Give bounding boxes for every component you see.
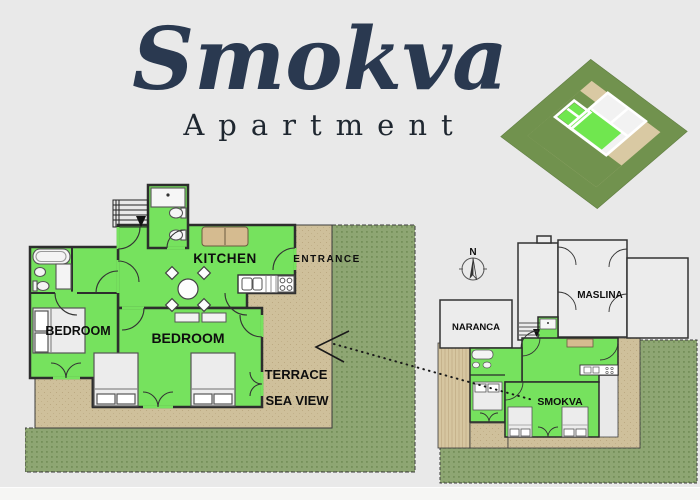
toilet-tank	[33, 281, 37, 291]
main-floor-plan: KITCHEN BEDROOM BEDROOM ENTRANCE TERRACE…	[25, 175, 425, 485]
site-counter	[580, 365, 618, 375]
compass: N	[459, 247, 487, 280]
site-bed-2	[562, 407, 588, 437]
site-terrace-small	[470, 423, 508, 448]
site-bath-sink	[473, 362, 480, 368]
title-script: Smokva	[110, 6, 530, 114]
site-terrace-left	[438, 343, 470, 448]
nightstand	[202, 313, 226, 322]
kitchen-counter	[238, 275, 295, 293]
stairs	[113, 200, 148, 227]
bed-large-2	[191, 353, 235, 406]
shower	[151, 188, 185, 207]
bedroom-large-label: BEDROOM	[151, 330, 224, 346]
wc-toilet1	[170, 208, 183, 218]
bathroom-sink	[35, 268, 46, 277]
shower-drain	[166, 193, 169, 196]
maslina-room	[558, 240, 627, 337]
sea-view-label: SEA VIEW	[265, 393, 329, 408]
site-bed-small	[473, 382, 502, 410]
maslina-label: MASLINA	[577, 290, 623, 301]
site-toilet	[483, 362, 491, 368]
compass-needle	[470, 258, 474, 279]
nightstand	[175, 313, 199, 322]
bed-large-1	[94, 353, 138, 406]
page: Smokva Apartment	[0, 0, 700, 500]
bedroom-small-label: BEDROOM	[45, 324, 110, 338]
unnamed-room	[627, 258, 688, 338]
terrace-label: TERRACE	[265, 367, 328, 382]
title-block: Smokva Apartment	[110, 6, 530, 142]
kitchen-label: KITCHEN	[193, 251, 257, 266]
kitchen-sink	[242, 278, 252, 290]
toilet	[37, 282, 49, 291]
smokva-label: SMOKVA	[537, 396, 583, 408]
bottom-strip	[0, 487, 700, 500]
entrance-label: ENTRANCE	[293, 254, 361, 265]
site-plan: N	[437, 235, 700, 492]
wc-toilet2	[170, 230, 183, 240]
compass-n-label: N	[469, 247, 476, 258]
bathroom-cabinet	[56, 264, 71, 289]
site-bed-1	[508, 407, 532, 437]
render-3d-scene	[501, 59, 688, 208]
site-bathtub	[472, 350, 493, 359]
render-3d	[486, 38, 700, 220]
naranca-label: NARANCA	[452, 322, 500, 333]
dining-table	[178, 279, 198, 299]
site-sofa	[567, 339, 593, 347]
